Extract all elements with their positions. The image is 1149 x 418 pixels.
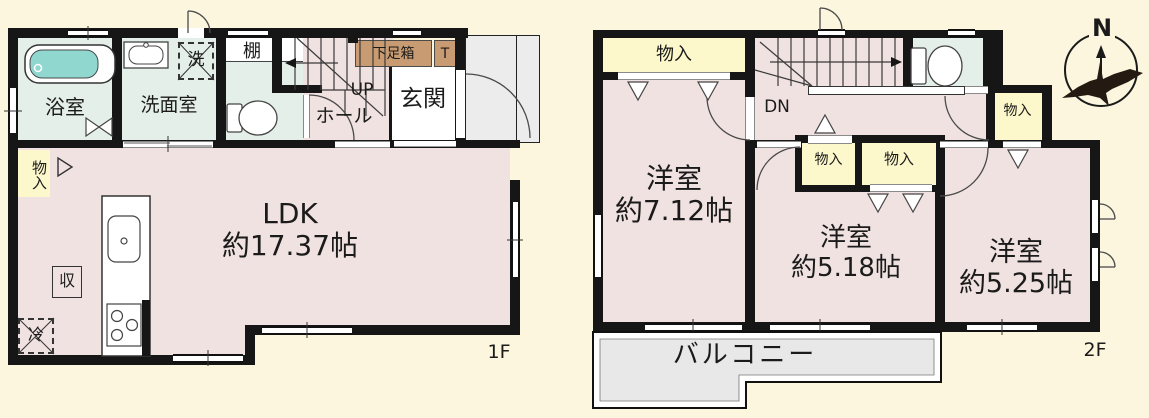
toilet-room-2f xyxy=(913,38,983,90)
closet-right-door xyxy=(1003,141,1041,148)
hall-ldk-opening xyxy=(335,141,390,148)
toilet-window-2f xyxy=(948,29,975,37)
toilet-mark-label: T xyxy=(434,46,456,62)
wall xyxy=(903,38,913,90)
porch-step-line xyxy=(516,36,518,142)
room3-window-east1 xyxy=(1090,200,1100,233)
room3-window-south xyxy=(967,323,1037,332)
balcony-label: バルコニー xyxy=(630,341,860,371)
washroom-sliding-door xyxy=(123,141,213,148)
room1-label: 洋室 約7.12帖 xyxy=(600,163,748,227)
room2-name: 洋室 xyxy=(757,224,935,254)
room1-size: 約7.12帖 xyxy=(600,195,748,227)
wall xyxy=(348,28,358,43)
bath-label: 浴室 xyxy=(18,96,112,119)
room3-door-gap xyxy=(940,141,988,148)
wall xyxy=(216,38,226,140)
entrance-door-gap xyxy=(456,70,465,138)
dn-label: DN xyxy=(756,98,798,118)
room1-window-south xyxy=(645,323,742,332)
room3-size: 約5.25帖 xyxy=(941,268,1091,299)
compass-north-label: N xyxy=(1089,15,1115,43)
entrance-porch xyxy=(465,35,540,143)
closet-right-label: 物入 xyxy=(993,103,1042,119)
up-label: UP xyxy=(344,81,380,101)
floor2-label: 2F xyxy=(1074,340,1116,362)
wall xyxy=(983,38,993,93)
floorplan-canvas: { "title": "間取り図", "floor1": { "floor_la… xyxy=(0,0,1149,418)
room3-window-east2 xyxy=(1090,248,1100,281)
washer-label: 洗 xyxy=(178,51,214,71)
closet-mid-door xyxy=(870,184,932,192)
room3-label: 洋室 約5.25帖 xyxy=(941,237,1091,299)
compass-bird xyxy=(1062,62,1143,106)
room2-window-south xyxy=(770,323,870,332)
room2-label: 洋室 約5.18帖 xyxy=(757,224,935,284)
wall xyxy=(272,85,322,93)
ldk-window-south2 xyxy=(262,326,352,335)
room1-door-gap xyxy=(745,97,755,140)
toilet-window-1f xyxy=(228,29,268,37)
ldk-size: 約17.37帖 xyxy=(175,230,405,262)
wall xyxy=(993,30,1003,93)
bath-side-window xyxy=(8,88,18,133)
closet-hall-door xyxy=(808,135,852,144)
stairs-window-arc xyxy=(820,8,842,30)
room3-name: 洋室 xyxy=(941,237,1091,268)
storage-label: 収 xyxy=(52,272,82,290)
room2-size: 約5.18帖 xyxy=(757,254,935,284)
ldk-label: LDK 約17.37帖 xyxy=(175,198,405,262)
wall xyxy=(1090,145,1100,332)
entrance-step xyxy=(394,141,456,147)
entrance-label: 玄関 xyxy=(392,86,454,112)
closet-mid-label: 物入 xyxy=(862,151,936,168)
bath-window xyxy=(68,29,108,37)
room2-door-gap xyxy=(757,141,801,148)
closet-1f-label: 物入 xyxy=(21,153,47,197)
east-window-arc1 xyxy=(1100,204,1115,219)
ldk-window-south1 xyxy=(173,354,243,363)
bath-room xyxy=(18,38,112,140)
shelf-label: 棚 xyxy=(228,42,276,63)
wall xyxy=(112,38,122,140)
closet-top-label: 物入 xyxy=(603,45,745,66)
closet-hall-label: 物入 xyxy=(802,152,855,168)
stairs-railing xyxy=(808,86,965,95)
closet-top-door xyxy=(618,72,730,80)
wall xyxy=(8,28,18,365)
wall xyxy=(593,30,1003,38)
compass-icon xyxy=(1062,34,1143,106)
ldk-window-east xyxy=(511,202,520,277)
room1-name: 洋室 xyxy=(600,163,748,195)
floor1-label: 1F xyxy=(478,342,520,364)
shoe-box-label: 下足箱 xyxy=(356,46,431,62)
wall xyxy=(1042,140,1100,148)
entrance-window xyxy=(393,29,421,37)
fridge-label: 冷 xyxy=(18,326,54,344)
wall xyxy=(1042,85,1052,148)
washroom-door-gap xyxy=(178,28,204,38)
washroom-label: 洗面室 xyxy=(120,95,218,117)
stairs-window-2f xyxy=(818,29,845,37)
hall-label: ホール xyxy=(300,106,388,128)
ldk-name: LDK xyxy=(175,198,405,230)
east-window-arc2 xyxy=(1100,252,1115,267)
